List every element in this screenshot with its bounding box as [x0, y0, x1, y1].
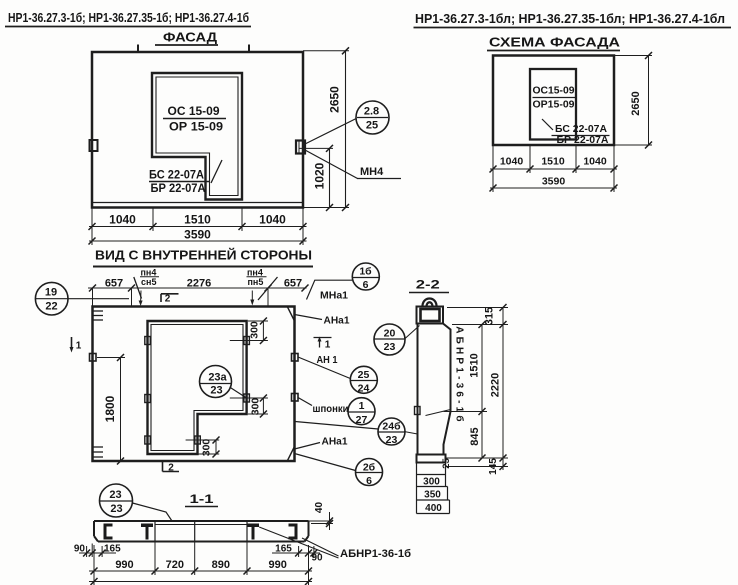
- svg-text:1040: 1040: [583, 156, 607, 168]
- svg-text:АН 1: АН 1: [317, 354, 338, 366]
- svg-text:25: 25: [366, 120, 378, 132]
- svg-text:ОР15-09: ОР15-09: [533, 99, 575, 111]
- svg-text:23: 23: [210, 385, 222, 397]
- svg-text:1800: 1800: [103, 395, 117, 422]
- svg-text:23а: 23а: [208, 372, 227, 384]
- svg-text:90: 90: [74, 544, 86, 555]
- svg-text:165: 165: [104, 544, 121, 555]
- svg-text:МНа1: МНа1: [320, 290, 348, 302]
- svg-text:25: 25: [358, 369, 370, 381]
- svg-text:20: 20: [384, 328, 396, 340]
- svg-text:300: 300: [423, 477, 440, 488]
- svg-text:2: 2: [165, 294, 171, 305]
- svg-text:300: 300: [250, 398, 262, 416]
- svg-text:ОС15-09: ОС15-09: [533, 85, 575, 97]
- svg-text:40: 40: [314, 502, 325, 514]
- svg-text:1: 1: [76, 341, 82, 352]
- svg-text:БР 22-07А: БР 22-07А: [151, 183, 206, 195]
- svg-text:90: 90: [312, 553, 324, 564]
- svg-text:845: 845: [469, 427, 481, 445]
- svg-text:1020: 1020: [313, 162, 327, 189]
- svg-text:СХЕМА ФАСАДА: СХЕМА ФАСАДА: [489, 35, 621, 50]
- svg-text:АБНР1-36-1б: АБНР1-36-1б: [454, 326, 466, 425]
- svg-text:2650: 2650: [630, 91, 642, 115]
- svg-text:2220: 2220: [490, 373, 502, 397]
- svg-text:657: 657: [105, 278, 123, 290]
- svg-text:23: 23: [384, 341, 396, 353]
- svg-text:165: 165: [275, 544, 292, 555]
- svg-text:22: 22: [45, 301, 57, 313]
- svg-text:24б: 24б: [382, 421, 401, 433]
- svg-text:НР1-36.27.3-1бл; НР1-36.27.35-: НР1-36.27.3-1бл; НР1-36.27.35-1бл; НР1-3…: [415, 11, 725, 26]
- svg-text:ФАСАД: ФАСАД: [163, 30, 218, 45]
- svg-text:3590: 3590: [542, 176, 566, 188]
- svg-text:2б: 2б: [363, 462, 376, 474]
- svg-text:300: 300: [201, 439, 213, 457]
- svg-text:990: 990: [115, 559, 133, 571]
- svg-text:315: 315: [484, 307, 496, 325]
- svg-text:шпонки: шпонки: [313, 403, 349, 415]
- svg-text:1: 1: [359, 400, 365, 412]
- svg-text:145: 145: [488, 458, 499, 475]
- svg-text:6: 6: [366, 475, 372, 487]
- svg-text:2650: 2650: [328, 86, 342, 113]
- svg-text:2: 2: [168, 463, 174, 474]
- svg-text:27: 27: [356, 414, 368, 426]
- svg-text:АНа1: АНа1: [322, 436, 348, 448]
- svg-text:2-2: 2-2: [416, 278, 440, 292]
- svg-text:3590: 3590: [184, 228, 211, 242]
- svg-text:1б: 1б: [359, 266, 372, 278]
- svg-text:23: 23: [110, 503, 122, 515]
- svg-text:1: 1: [325, 340, 331, 351]
- svg-text:25: 25: [441, 458, 452, 469]
- svg-text:400: 400: [425, 503, 442, 514]
- svg-text:1040: 1040: [259, 213, 286, 227]
- svg-text:БР 22-07А: БР 22-07А: [557, 134, 609, 146]
- svg-text:990: 990: [269, 559, 287, 571]
- svg-text:1040: 1040: [500, 156, 524, 168]
- svg-text:ВИД С ВНУТРЕННЕЙ СТОРОНЫ: ВИД С ВНУТРЕННЕЙ СТОРОНЫ: [95, 248, 312, 263]
- svg-text:1040: 1040: [109, 213, 136, 227]
- svg-text:1510: 1510: [184, 213, 211, 227]
- svg-text:пн5: пн5: [248, 277, 264, 287]
- svg-text:350: 350: [424, 490, 441, 501]
- svg-text:1-1: 1-1: [190, 492, 214, 506]
- svg-text:720: 720: [166, 559, 184, 571]
- svg-text:24: 24: [358, 383, 370, 395]
- svg-text:890: 890: [212, 559, 230, 571]
- svg-text:6: 6: [363, 279, 369, 291]
- svg-text:сн5: сн5: [141, 277, 156, 287]
- svg-text:19: 19: [45, 287, 57, 299]
- svg-text:ОС 15-09: ОС 15-09: [168, 104, 220, 118]
- svg-text:МН4: МН4: [360, 166, 384, 178]
- svg-text:23: 23: [386, 434, 398, 446]
- svg-text:1510: 1510: [469, 353, 481, 377]
- svg-text:НР1-36.27.3-1б; НР1-36.27.35-1: НР1-36.27.3-1б; НР1-36.27.35-1б; НР1-36.…: [8, 10, 249, 25]
- svg-text:657: 657: [284, 278, 302, 290]
- svg-text:АНа1: АНа1: [324, 315, 350, 327]
- svg-text:23: 23: [109, 489, 121, 501]
- svg-text:БС 22-07А: БС 22-07А: [149, 170, 204, 182]
- svg-text:300: 300: [249, 321, 261, 339]
- svg-text:2.8: 2.8: [364, 106, 379, 118]
- svg-text:1510: 1510: [541, 156, 565, 168]
- svg-text:ОР 15-09: ОР 15-09: [169, 120, 223, 134]
- svg-text:АБНР1-36-1б: АБНР1-36-1б: [340, 548, 411, 560]
- svg-text:2276: 2276: [187, 278, 211, 290]
